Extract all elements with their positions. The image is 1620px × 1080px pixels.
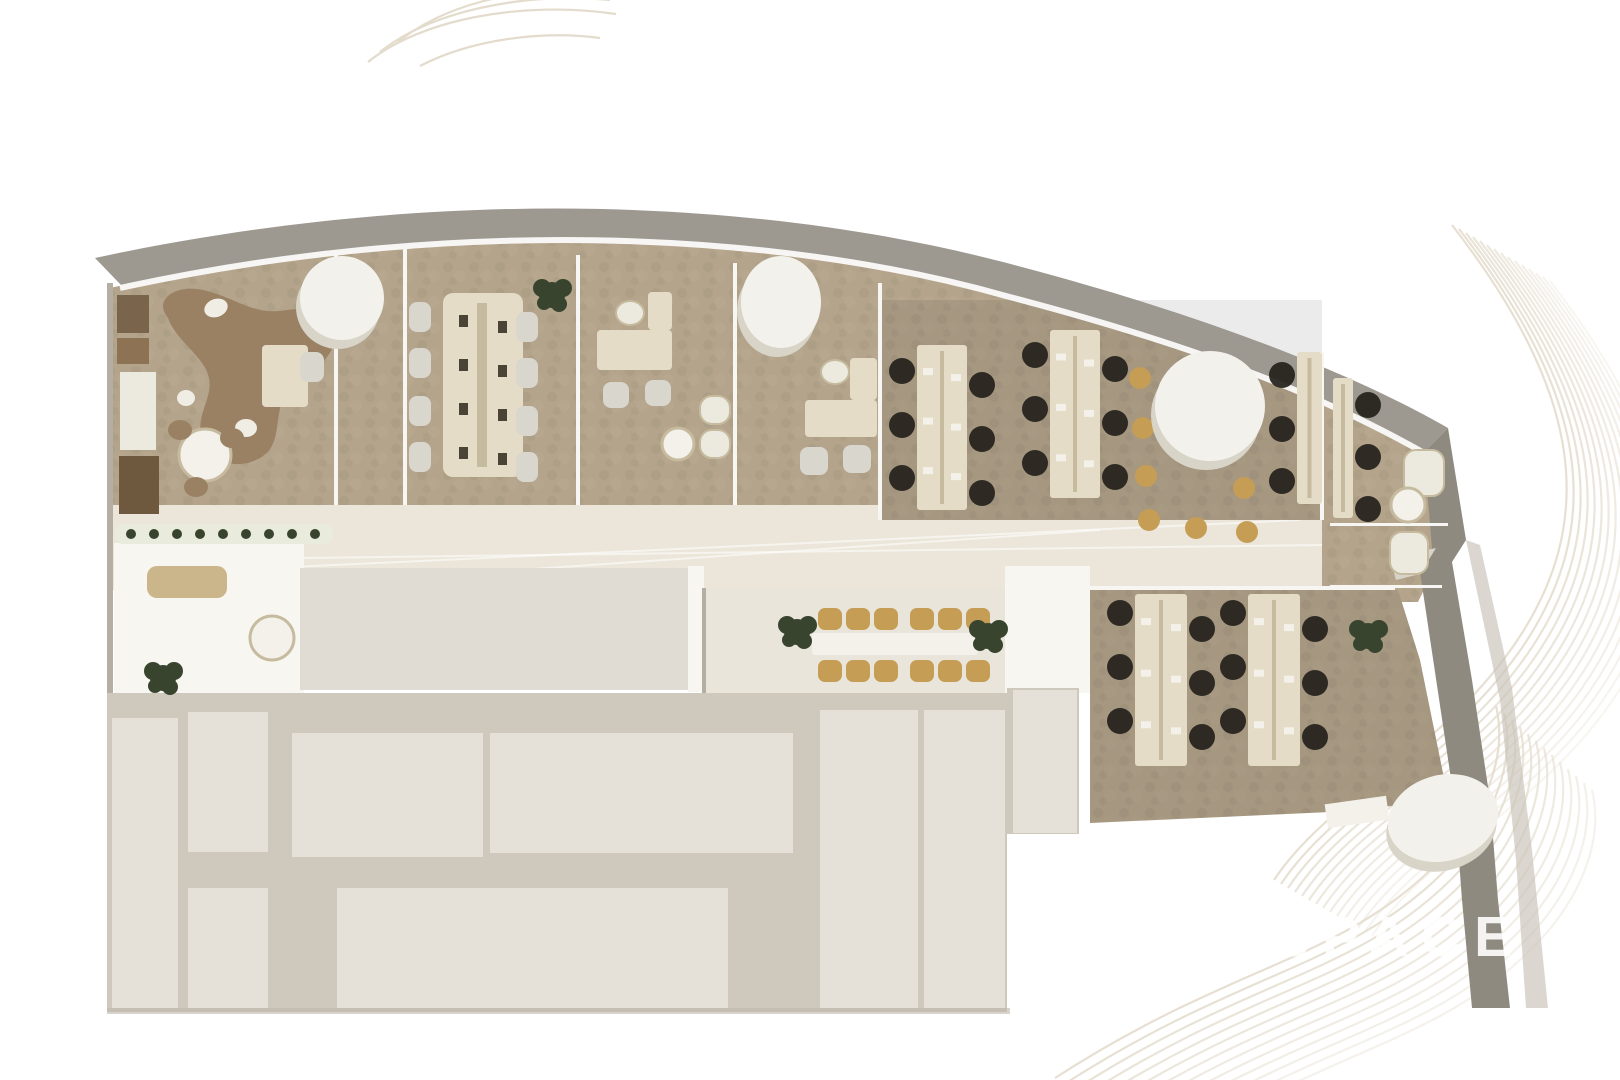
round-table — [1391, 488, 1425, 522]
meeting-chair — [910, 608, 934, 630]
desk — [805, 400, 877, 437]
corridor-gap — [688, 566, 704, 692]
desk-bank-divider — [1073, 336, 1077, 492]
column — [300, 256, 384, 340]
plant — [554, 279, 572, 297]
guest-chair — [220, 428, 244, 448]
meeting-chair — [874, 608, 898, 630]
stool — [1129, 367, 1151, 389]
meeting-chair — [938, 660, 962, 682]
conference-chair — [409, 348, 431, 378]
plant — [162, 679, 178, 695]
desk-bank-divider — [1341, 384, 1345, 512]
plant — [969, 620, 987, 638]
task-chair — [889, 358, 915, 384]
task-chair — [1355, 496, 1381, 522]
reception-sofa — [147, 566, 227, 598]
lower-room — [188, 712, 268, 852]
conference-chair — [516, 358, 538, 388]
left-wall — [107, 283, 113, 693]
floor-plan-stage: SPACE — [0, 0, 1620, 1080]
lower-room — [1013, 690, 1077, 833]
office-chair — [843, 445, 871, 473]
monitor — [923, 467, 933, 474]
meeting-table — [812, 633, 978, 655]
armchair — [700, 396, 730, 424]
task-chair — [1302, 670, 1328, 696]
task-chair — [969, 372, 995, 398]
task-chair — [1269, 416, 1295, 442]
monitor — [1141, 670, 1151, 677]
plant — [165, 662, 183, 680]
glass-partition — [576, 255, 580, 505]
plant — [148, 679, 162, 693]
monitor — [1084, 410, 1094, 417]
lower-room — [292, 733, 483, 857]
plant — [799, 616, 817, 634]
task-chair — [889, 465, 915, 491]
table-phone — [498, 453, 507, 465]
column — [1155, 351, 1265, 461]
hedge-plant — [241, 529, 251, 539]
plant — [796, 633, 812, 649]
monitor — [1171, 624, 1181, 631]
table-phone — [459, 315, 468, 327]
lower-rooms-group — [112, 690, 1077, 1008]
table-phone — [498, 321, 507, 333]
plant — [1370, 620, 1388, 638]
desk-chair — [616, 301, 644, 325]
meeting-room-wall — [702, 588, 706, 693]
hedge-plant — [287, 529, 297, 539]
office-chair — [645, 380, 671, 406]
monitor — [951, 473, 961, 480]
table-phone — [459, 447, 468, 459]
column — [741, 256, 821, 348]
desk-bank-divider — [940, 351, 944, 504]
task-chair — [1107, 600, 1133, 626]
stool — [1185, 517, 1207, 539]
task-chair — [1189, 616, 1215, 642]
plant — [551, 296, 567, 312]
lower-room — [188, 888, 268, 1008]
meeting-chair — [846, 660, 870, 682]
monitor — [1141, 618, 1151, 625]
task-chair — [1355, 444, 1381, 470]
plant — [1349, 620, 1367, 638]
stool — [1233, 477, 1255, 499]
floor-plan-svg: SPACE — [0, 0, 1620, 1080]
meeting-chair — [938, 608, 962, 630]
task-chair — [1269, 362, 1295, 388]
lower-room — [112, 718, 178, 1008]
glass-partition — [733, 263, 737, 505]
media-cabinet — [119, 456, 159, 514]
guest-chair — [184, 477, 208, 497]
hedge-plant — [195, 529, 205, 539]
meeting-chair — [910, 660, 934, 682]
meeting-chair — [818, 608, 842, 630]
desk — [648, 292, 672, 330]
hedge-plant — [126, 529, 136, 539]
conference-chair — [409, 302, 431, 332]
storage-cabinet — [120, 372, 156, 450]
plant — [778, 616, 796, 634]
plant — [973, 637, 987, 651]
monitor — [1056, 404, 1066, 411]
round-table — [250, 616, 294, 660]
plant — [533, 279, 551, 297]
plant — [782, 633, 796, 647]
conference-chair — [516, 312, 538, 342]
conference-chair — [409, 442, 431, 472]
plant — [144, 662, 162, 680]
task-chair — [889, 412, 915, 438]
task-chair — [1302, 724, 1328, 750]
round-table — [662, 428, 694, 460]
side-corridor — [1005, 566, 1090, 693]
armchair — [1390, 532, 1428, 574]
glass-partition — [1330, 585, 1442, 588]
task-chair — [1102, 356, 1128, 382]
meeting-chair — [818, 660, 842, 682]
watermark-text: SPACE — [1272, 905, 1524, 969]
monitor — [1084, 460, 1094, 467]
shelf-cabinet — [117, 295, 149, 333]
conference-chair — [409, 396, 431, 426]
glass-partition — [878, 283, 882, 520]
armchair — [700, 430, 730, 458]
task-chair — [1107, 708, 1133, 734]
glass-partition — [403, 245, 407, 505]
task-chair — [1022, 342, 1048, 368]
task-chair — [1022, 396, 1048, 422]
monitor — [951, 424, 961, 431]
monitor — [1171, 676, 1181, 683]
plant — [537, 296, 551, 310]
task-chair — [969, 480, 995, 506]
task-chair — [1302, 616, 1328, 642]
lower-room — [490, 733, 793, 853]
hedge-plant — [149, 529, 159, 539]
task-chair — [1355, 392, 1381, 418]
meeting-chair — [874, 660, 898, 682]
task-chair — [1102, 464, 1128, 490]
task-chair — [1102, 410, 1128, 436]
table-phone — [498, 365, 507, 377]
hedge-plant — [310, 529, 320, 539]
task-chair — [1189, 670, 1215, 696]
task-chair — [1220, 654, 1246, 680]
monitor — [1284, 624, 1294, 631]
lower-room — [337, 888, 728, 1008]
task-chair — [1220, 708, 1246, 734]
service-core-slab — [300, 568, 688, 690]
table-phone — [459, 359, 468, 371]
desk-bank-divider — [1272, 600, 1276, 760]
monitor — [1171, 727, 1181, 734]
office-chair — [603, 382, 629, 408]
desk — [597, 330, 672, 370]
conference-chair — [516, 406, 538, 436]
task-chair — [1189, 724, 1215, 750]
meeting-chair — [846, 608, 870, 630]
stool — [1236, 521, 1258, 543]
lower-room — [924, 710, 1005, 1008]
desk-chair — [821, 360, 849, 384]
shelf-cabinet — [117, 338, 149, 364]
plant — [1367, 637, 1383, 653]
plant — [1353, 637, 1367, 651]
monitor — [1284, 676, 1294, 683]
monitor — [1254, 670, 1264, 677]
task-chair — [969, 426, 995, 452]
table-phone — [498, 409, 507, 421]
plant — [987, 637, 1003, 653]
monitor — [923, 418, 933, 425]
guest-chair — [168, 420, 192, 440]
plant — [990, 620, 1008, 638]
hedge-plant — [218, 529, 228, 539]
monitor — [1056, 354, 1066, 361]
hedge-plant — [264, 529, 274, 539]
task-chair — [1107, 654, 1133, 680]
monitor — [1141, 721, 1151, 728]
desk-bank-divider — [1159, 600, 1163, 760]
lower-room — [820, 710, 918, 1008]
office-chair — [300, 352, 324, 382]
task-chair — [1022, 450, 1048, 476]
conference-table-runner — [477, 303, 487, 467]
meeting-chair — [966, 660, 990, 682]
task-chair — [1220, 600, 1246, 626]
monitor — [951, 374, 961, 381]
hedge-plant — [172, 529, 182, 539]
monitor — [1056, 454, 1066, 461]
monitor — [1254, 618, 1264, 625]
glass-partition — [1330, 523, 1448, 526]
stool — [1138, 509, 1160, 531]
conference-chair — [516, 452, 538, 482]
stool — [1132, 417, 1154, 439]
stool — [1135, 465, 1157, 487]
desk-bank-divider — [1308, 358, 1312, 498]
table-phone — [459, 403, 468, 415]
monitor — [1284, 727, 1294, 734]
building-base-shadow — [107, 1008, 1010, 1014]
desk — [850, 358, 877, 400]
office-chair — [800, 447, 828, 475]
task-chair — [1269, 468, 1295, 494]
monitor — [1254, 721, 1264, 728]
sofa-pillow — [177, 390, 195, 406]
monitor — [923, 368, 933, 375]
monitor — [1084, 360, 1094, 367]
